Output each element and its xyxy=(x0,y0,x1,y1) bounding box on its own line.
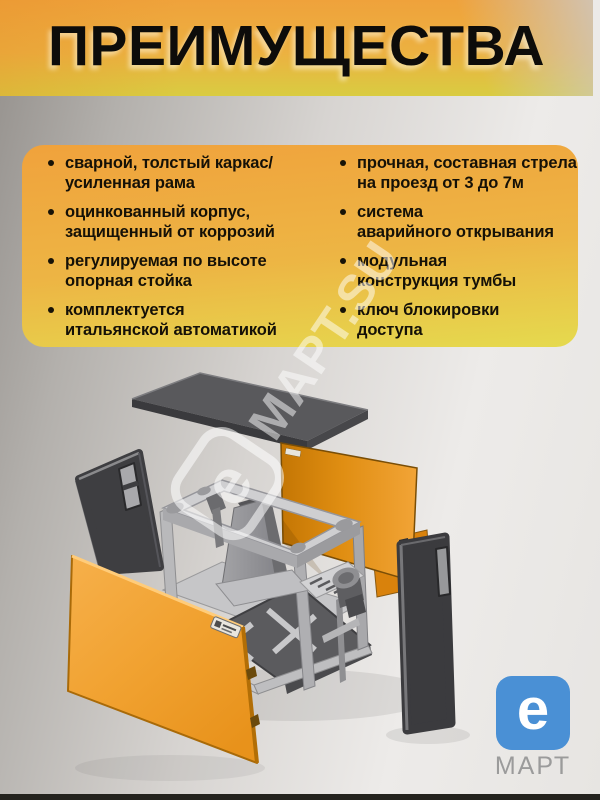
advantage-text: комплектуется xyxy=(65,300,277,320)
advantage-text: ключ блокировки xyxy=(357,300,499,320)
list-item: прочная, составная стрела на проезд от 3… xyxy=(340,153,577,193)
emart-logo-icon: e xyxy=(496,676,570,750)
list-item: модульная конструкция тумбы xyxy=(340,251,577,291)
advantages-card: сварной, толстый каркас/ усиленная рама … xyxy=(22,145,578,347)
left-door-panel xyxy=(75,453,160,574)
brand-logo: e МАРТ xyxy=(488,676,578,781)
advantage-text: на проезд от 3 до 7м xyxy=(357,173,577,193)
bullet-icon xyxy=(48,307,54,313)
advantage-text: итальянской автоматикой xyxy=(65,320,277,340)
advantage-text: опорная стойка xyxy=(65,271,267,291)
advantages-column-right: прочная, составная стрела на проезд от 3… xyxy=(340,153,577,341)
advantage-text: оцинкованный корпус, xyxy=(65,202,275,222)
advantage-text: регулируемая по высоте xyxy=(65,251,267,271)
advantage-text: модульная xyxy=(357,251,516,271)
advantage-text: конструкция тумбы xyxy=(357,271,516,291)
bullet-icon xyxy=(340,160,346,166)
header-band: ПРЕИМУЩЕСТВА xyxy=(0,0,593,96)
bullet-icon xyxy=(340,209,346,215)
list-item: регулируемая по высоте опорная стойка xyxy=(48,251,332,291)
advantage-text: сварной, толстый каркас/ xyxy=(65,153,273,173)
advantage-text: система xyxy=(357,202,554,222)
bullet-icon xyxy=(48,258,54,264)
page-title: ПРЕИМУЩЕСТВА xyxy=(48,13,545,83)
advantage-text: усиленная рама xyxy=(65,173,273,193)
list-item: ключ блокировки доступа xyxy=(340,300,577,340)
list-item: оцинкованный корпус, защищенный от корро… xyxy=(48,202,332,242)
advantage-text: аварийного открывания xyxy=(357,222,554,242)
bottom-bar xyxy=(0,794,600,800)
bullet-icon xyxy=(340,258,346,264)
advantage-text: защищенный от коррозий xyxy=(65,222,275,242)
logo-symbol: e xyxy=(517,681,549,739)
logo-caption: МАРТ xyxy=(488,752,578,781)
top-lid xyxy=(132,373,368,450)
list-item: система аварийного открывания xyxy=(340,202,577,242)
right-door-panel xyxy=(399,537,451,730)
bullet-icon xyxy=(48,160,54,166)
list-item: сварной, толстый каркас/ усиленная рама xyxy=(48,153,332,193)
bullet-icon xyxy=(340,307,346,313)
advantage-text: доступа xyxy=(357,320,499,340)
advantages-column-left: сварной, толстый каркас/ усиленная рама … xyxy=(48,153,332,341)
list-item: комплектуется итальянской автоматикой xyxy=(48,300,332,340)
advantage-text: прочная, составная стрела xyxy=(357,153,577,173)
right-door-window-cutout xyxy=(436,547,450,596)
bullet-icon xyxy=(48,209,54,215)
